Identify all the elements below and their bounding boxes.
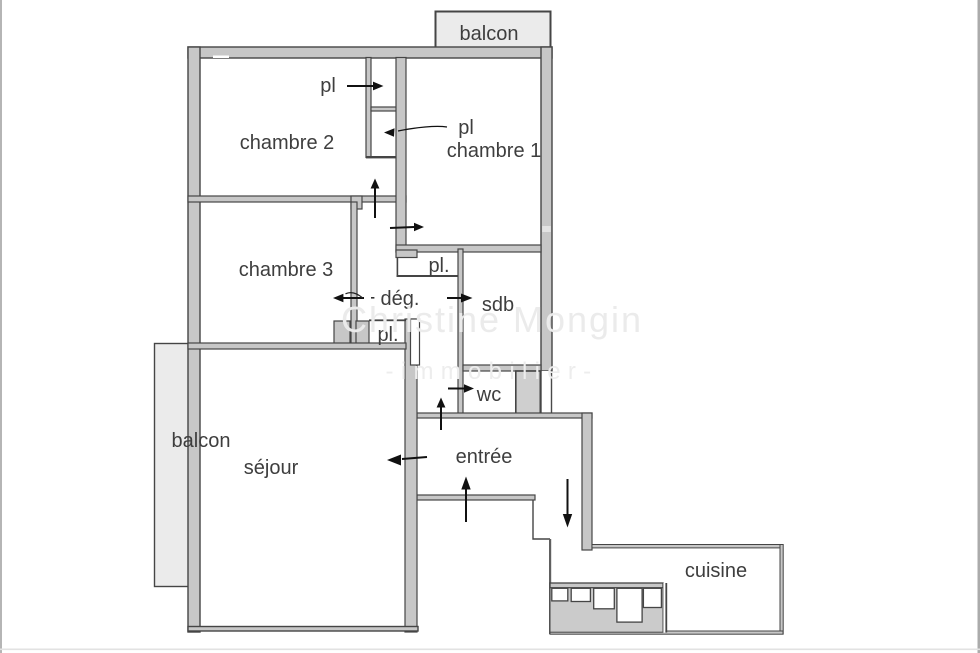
svg-text:chambre 1: chambre 1 [447, 140, 542, 162]
svg-text:-immobilier-: -immobilier- [386, 358, 599, 385]
svg-text:chambre 2: chambre 2 [240, 132, 335, 154]
svg-text:balcon: balcon [172, 430, 231, 452]
svg-text:pl: pl [320, 75, 336, 97]
svg-text:séjour: séjour [244, 457, 299, 479]
svg-text:entrée: entrée [456, 446, 513, 468]
svg-text:Christine Mongin: Christine Mongin [341, 299, 643, 340]
svg-text:balcon: balcon [460, 23, 519, 45]
svg-text:wc: wc [476, 384, 501, 406]
svg-text:pl: pl [458, 117, 474, 139]
svg-text:cuisine: cuisine [685, 560, 747, 582]
svg-text:chambre 3: chambre 3 [239, 259, 334, 281]
svg-text:pl.: pl. [428, 255, 449, 277]
